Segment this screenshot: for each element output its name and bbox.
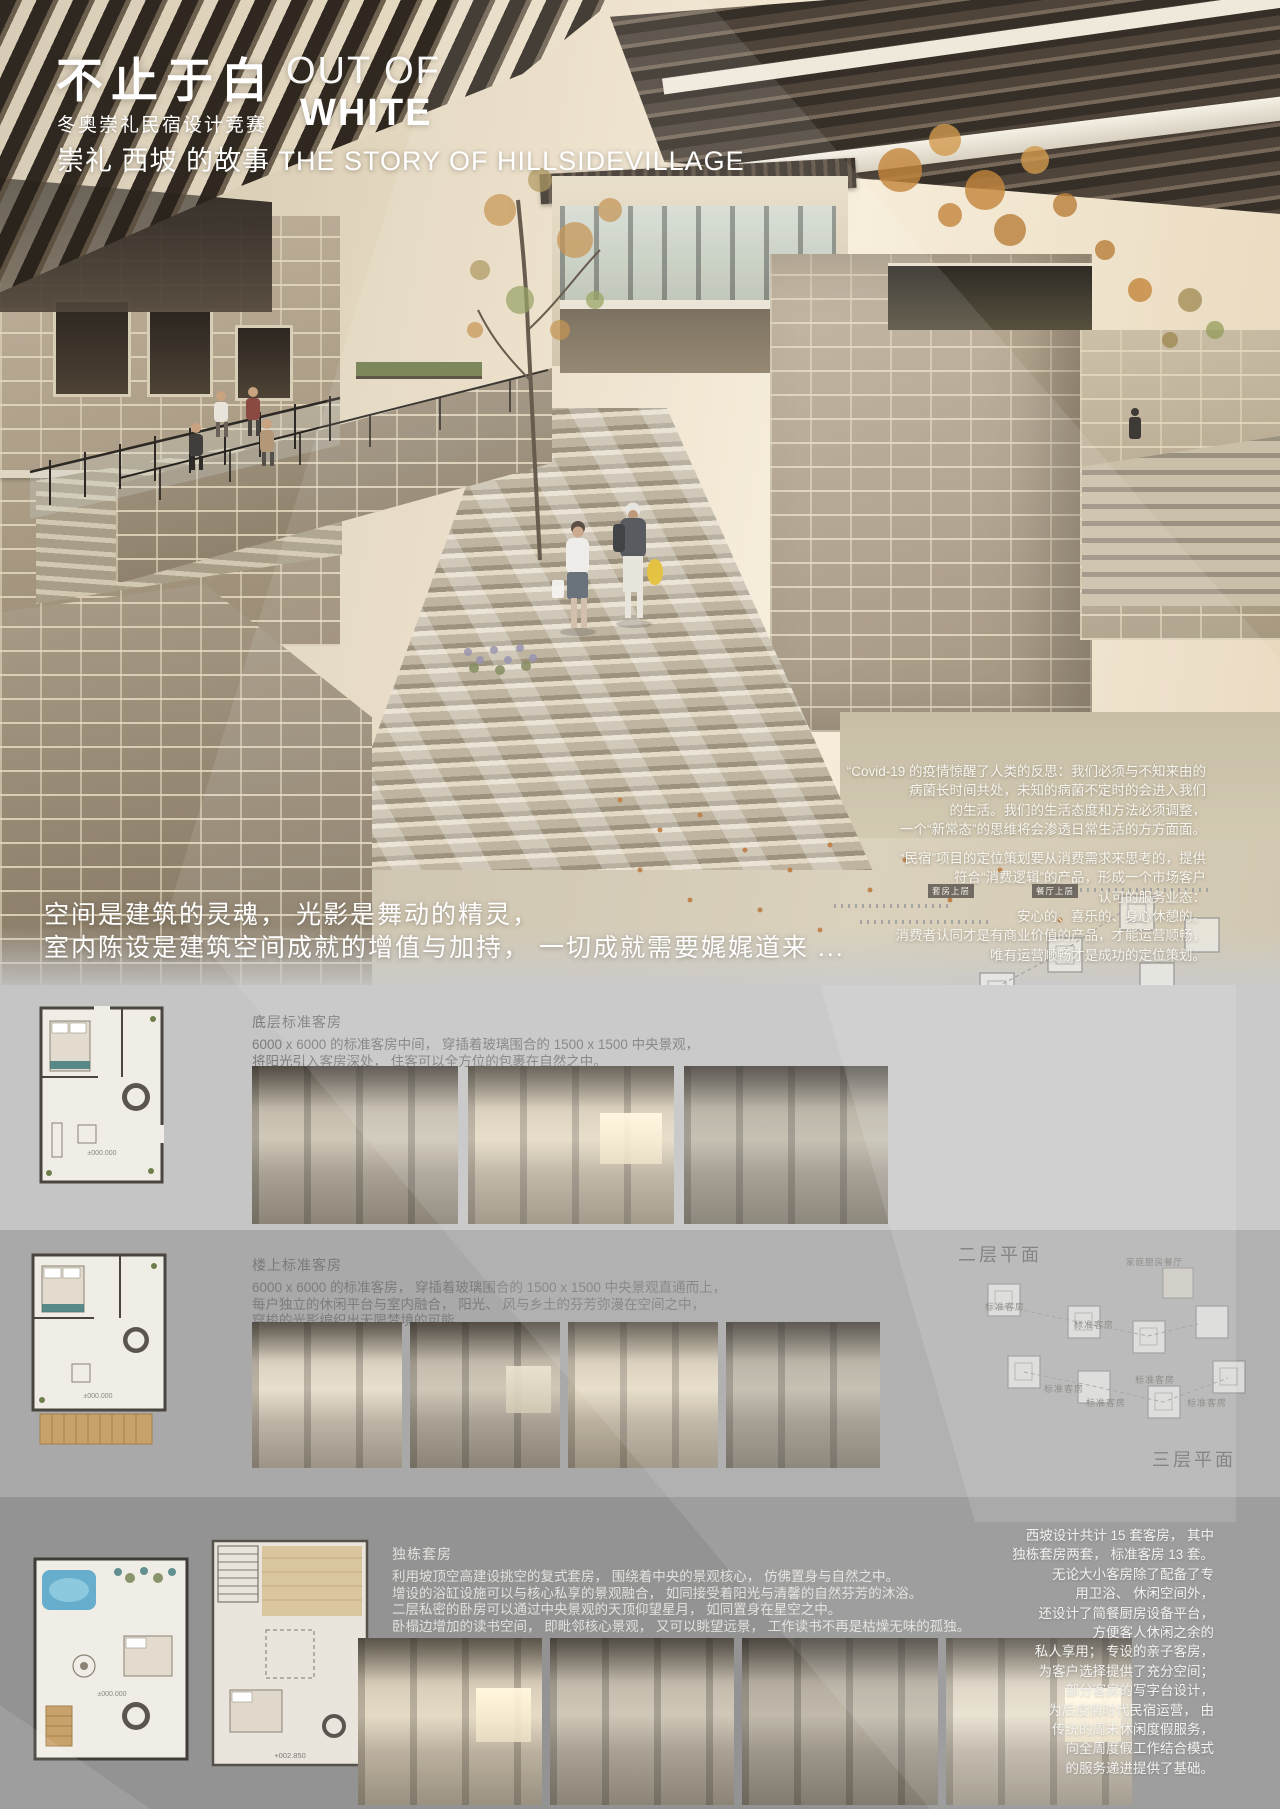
- site-tag-standard-room: 标准客房: [1074, 1318, 1114, 1331]
- intro-line: 消费者认同才是有商业价值的产品，才能运营顺畅，: [786, 926, 1206, 945]
- summary-line: 向全周度假工作结合模式: [944, 1739, 1214, 1758]
- floor-plan-suite-level1: ±000.000: [32, 1556, 190, 1762]
- summary-line: 独栋套房两套， 标准客房 13 套。: [944, 1545, 1214, 1564]
- summary-line: 无论大小客房除了配备了专: [944, 1565, 1214, 1584]
- svg-text:+002.850: +002.850: [274, 1751, 306, 1760]
- render-photo: [410, 1322, 560, 1468]
- site-tag-standard-room: 标准客房: [1135, 1373, 1175, 1386]
- render-photo: [726, 1322, 880, 1468]
- summary-line: 为客户选择提供了充分空间；: [944, 1662, 1214, 1681]
- intro-line: “民宿”项目的定位策划要从消费需求来思考的，提供: [786, 849, 1206, 868]
- svg-text:±000.000: ±000.000: [97, 1691, 126, 1698]
- render-photo: [684, 1066, 888, 1224]
- summary-line: 西坡设计共计 15 套客房， 其中: [944, 1526, 1214, 1545]
- render-photo: [358, 1638, 542, 1805]
- level2-plan-label: 二层平面: [958, 1241, 1042, 1267]
- summary-line: 用卫浴、 休闲空间外，: [944, 1584, 1214, 1603]
- section-title: 独栋套房: [392, 1544, 970, 1564]
- site-tag-family-kitchen: 家庭厨房餐厅: [1126, 1256, 1183, 1268]
- intro-line: 安心的、喜乐的、身心休憩的。: [786, 907, 1206, 926]
- upper-room-description: 楼上标准客房 6000 x 6000 的标准客房， 穿插着玻璃围合的 1500 …: [252, 1255, 726, 1330]
- floor-plan-suite-level2: +002.850: [210, 1538, 370, 1768]
- intro-line: “Covid-19 的疫情惊醒了人类的反思：我们必须与不知来由的: [786, 762, 1206, 781]
- render-photo: [252, 1322, 402, 1468]
- intro-line: 认可的服务业态：: [786, 888, 1206, 907]
- summary-line: 方便客人休闲之余的: [944, 1623, 1214, 1642]
- competition-poster: 不止于白 OUT OF WHITE 冬奥崇礼民宿设计竞赛 崇礼 西坡 的故事 T…: [0, 0, 1280, 1809]
- site-tag-standard-room: 标准客房: [1187, 1396, 1227, 1409]
- site-tag-standard-room: 标准客房: [1086, 1396, 1126, 1409]
- render-photo: [252, 1066, 458, 1224]
- section-title: 楼上标准客房: [252, 1255, 726, 1275]
- summary-line: 为后疫情时代民宿运营， 由: [944, 1701, 1214, 1720]
- section-line: 二层私密的卧房可以通过中央景观的天顶仰望星月， 如同置身在星空之中。: [392, 1602, 970, 1619]
- window: [238, 328, 290, 398]
- right-wall-opening: [888, 266, 1092, 330]
- intro-line: 唯有运营顺畅才是成功的定位策划。: [786, 946, 1206, 965]
- site-plan-level2: [948, 1266, 1280, 1446]
- summary-line: 的服务递进提供了基础。: [944, 1759, 1214, 1778]
- summary-line: 私人享用； 专设的亲子客房，: [944, 1642, 1214, 1661]
- level3-plan-label: 三层平面: [1152, 1446, 1236, 1472]
- section-line: 每户独立的休闲平台与室内融合， 阳光、 风与乡土的芬芳弥漫在空间之中，: [252, 1297, 726, 1314]
- slogan: 空间是建筑的灵魂， 光影是舞动的精灵， 室内陈设是建筑空间成就的增值与加持， 一…: [44, 899, 845, 965]
- render-photo: [468, 1066, 674, 1224]
- project-summary: 西坡设计共计 15 套客房， 其中 独栋套房两套， 标准客房 13 套。 无论大…: [944, 1526, 1214, 1778]
- summary-line: 部分客房的写字台设计，: [944, 1681, 1214, 1700]
- svg-text:±000.000: ±000.000: [87, 1150, 116, 1157]
- story-title: 崇礼 西坡 的故事 THE STORY OF HILLSIDEVILLAGE: [57, 139, 745, 178]
- section-title: 底层标准客房: [252, 1012, 699, 1032]
- section-line: 增设的浴缸设施可以与核心私享的景观融合， 如同接受着阳光与清馨的自然芬芳的沐浴。: [392, 1586, 970, 1603]
- slogan-line1: 空间是建筑的灵魂， 光影是舞动的精灵，: [44, 899, 845, 932]
- section-line: 6000 x 6000 的标准客房中间， 穿插着玻璃围合的 1500 x 150…: [252, 1037, 699, 1054]
- intro-line: 一个“新常态”的思维将会渗透日常生活的方方面面。: [786, 820, 1206, 839]
- planter: [356, 362, 482, 376]
- poster-title-cn: 不止于白: [56, 42, 276, 111]
- intro-paragraphs: “Covid-19 的疫情惊醒了人类的反思：我们必须与不知来由的 病菌长时间共处…: [786, 762, 1206, 965]
- section-line: 卧榻边增加的读书空间， 即毗邻核心景观， 又可以眺望远景， 工作读书不再是枯燥无…: [392, 1619, 970, 1636]
- summary-line: 传统的周末休闲度假服务，: [944, 1720, 1214, 1739]
- competition-subtitle: 冬奥崇礼民宿设计竞赛: [57, 110, 267, 137]
- section-line: 6000 x 6000 的标准客房， 穿插着玻璃围合的 1500 x 1500 …: [252, 1280, 726, 1297]
- floor-plan-upper-room: ±000.000: [30, 1252, 168, 1448]
- render-photo: [742, 1638, 938, 1805]
- section-line: 利用坡顶空高建设挑空的复式套房， 围绕着中央的景观核心， 仿佛置身与自然之中。: [392, 1569, 970, 1586]
- floor-plan-ground-room: ±000.000: [38, 1005, 165, 1185]
- render-photo: [550, 1638, 734, 1805]
- render-photo: [568, 1322, 718, 1468]
- intro-line: 的生活。我们的生活态度和方法必须调整，: [786, 801, 1206, 820]
- poster-title-en-line1: OUT OF: [286, 50, 441, 93]
- window: [56, 302, 128, 394]
- window: [150, 312, 210, 394]
- poster-title-en-line2: WHITE: [300, 92, 432, 135]
- svg-text:±000.000: ±000.000: [83, 1393, 112, 1400]
- ground-room-description: 底层标准客房 6000 x 6000 的标准客房中间， 穿插着玻璃围合的 150…: [252, 1012, 699, 1070]
- summary-line: 还设计了简餐厨房设备平台，: [944, 1604, 1214, 1623]
- intro-line: 符合“消费逻辑”的产品，形成一个市场客户: [786, 868, 1206, 887]
- site-tag-standard-room: 标准客房: [1044, 1382, 1084, 1395]
- intro-line: 病菌长时间共处，未知的病菌不定时的会进入我们: [786, 781, 1206, 800]
- slogan-line2: 室内陈设是建筑空间成就的增值与加持， 一切成就需要娓娓道来 ...: [44, 932, 845, 965]
- suite-description: 独栋套房 利用坡顶空高建设挑空的复式套房， 围绕着中央的景观核心， 仿佛置身与自…: [392, 1544, 970, 1635]
- site-tag-standard-room: 标准客房: [985, 1300, 1025, 1313]
